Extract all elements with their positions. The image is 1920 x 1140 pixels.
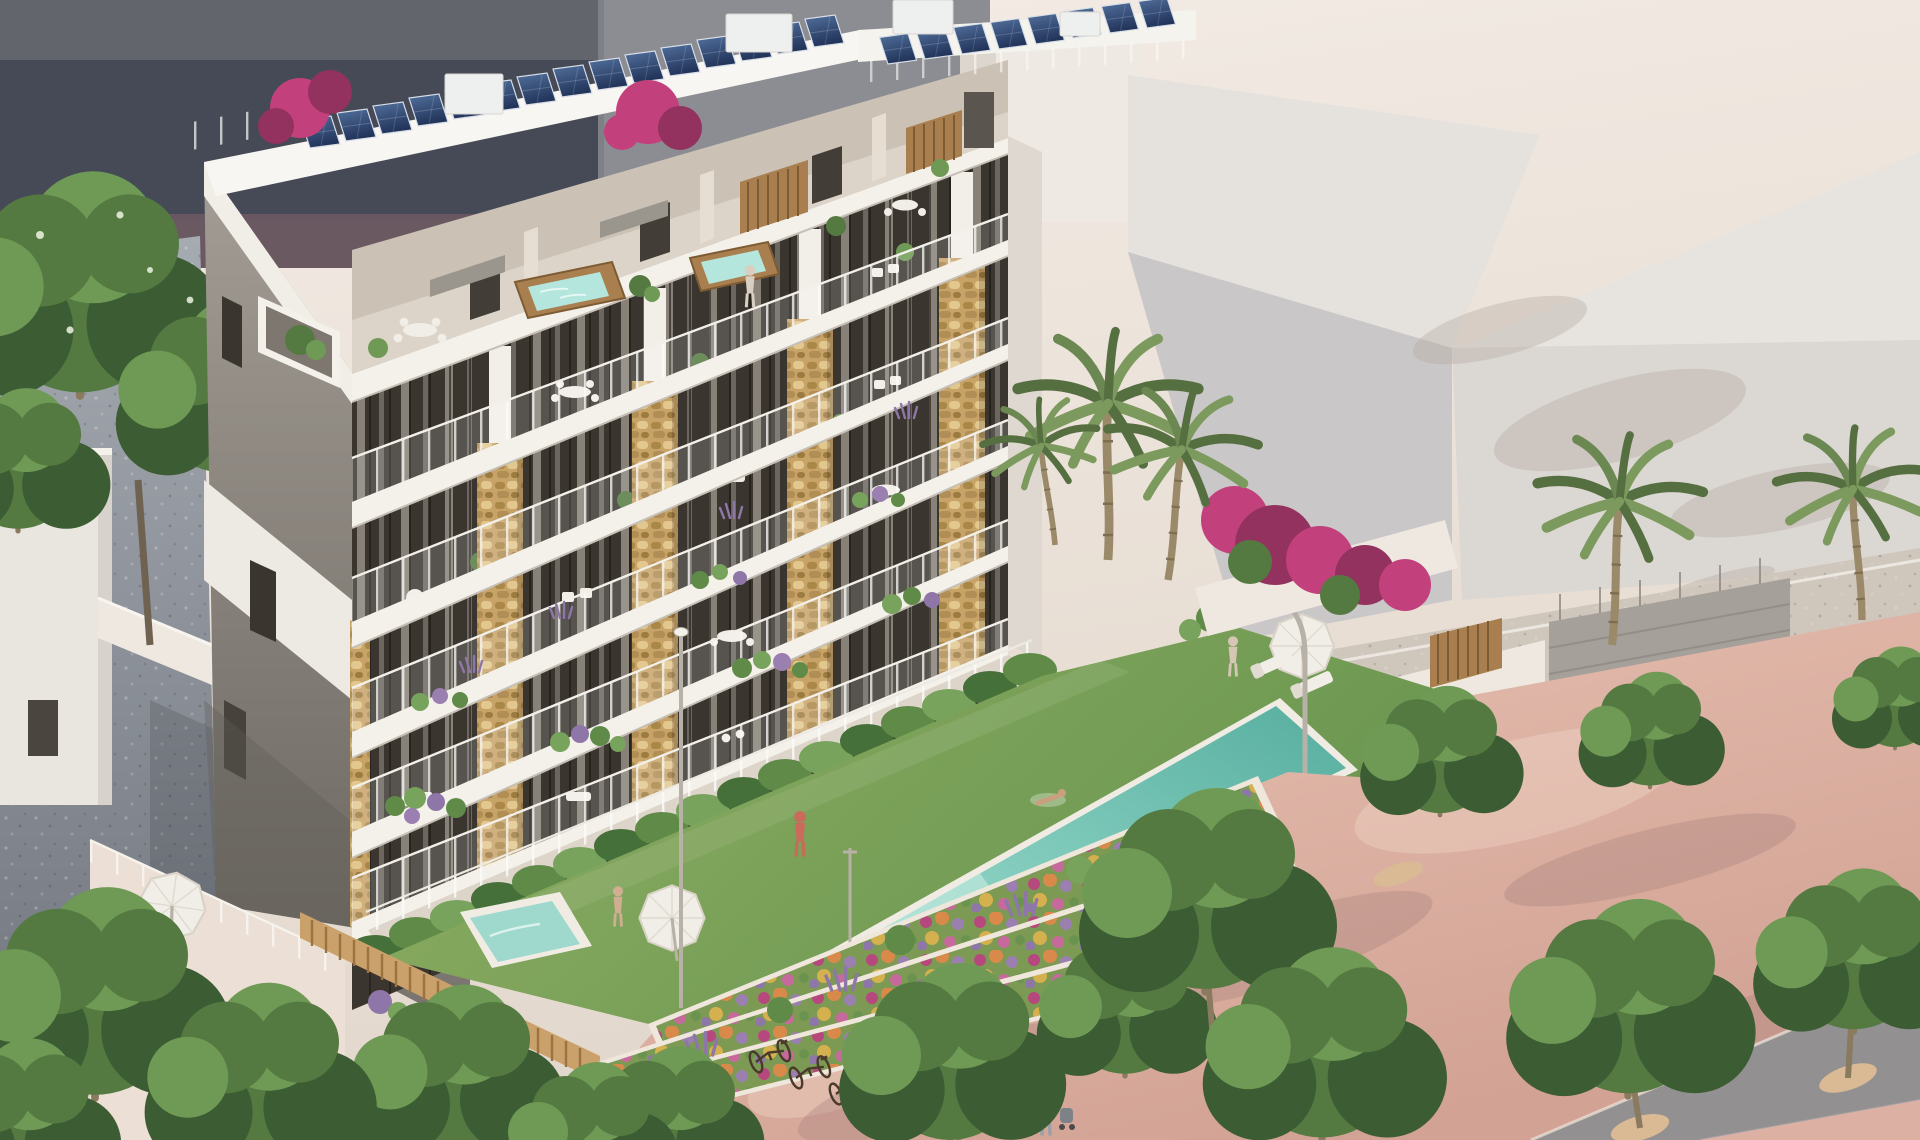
penthouse-chimney [964, 92, 994, 148]
building-right-return [1008, 136, 1042, 660]
architectural-render [0, 0, 1920, 1140]
side-window [222, 296, 242, 368]
side-window [250, 560, 276, 642]
